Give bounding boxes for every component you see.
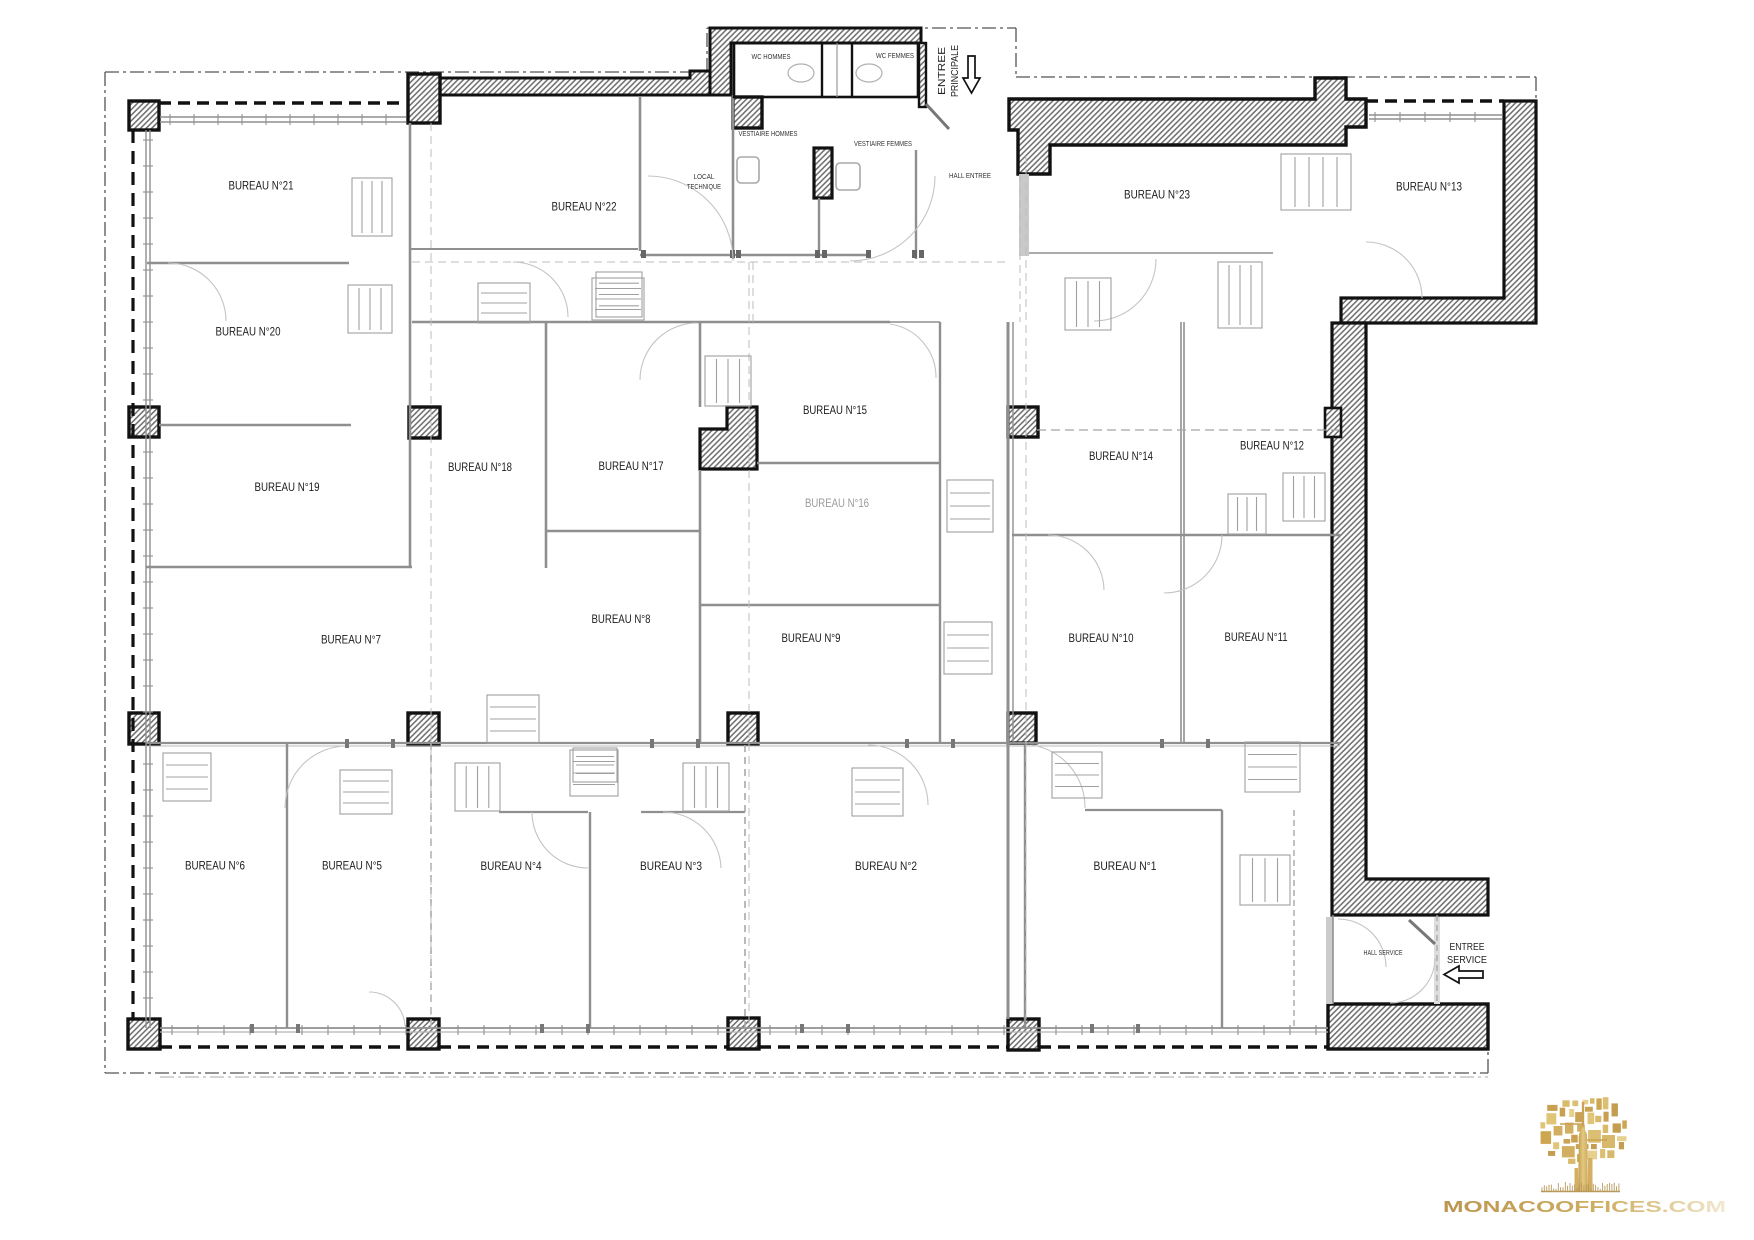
svg-text:WC HOMMES: WC HOMMES: [752, 52, 791, 61]
svg-text:PRINCIPALE: PRINCIPALE: [949, 45, 961, 97]
svg-text:BUREAU N°16: BUREAU N°16: [805, 498, 869, 510]
svg-text:BUREAU N°20: BUREAU N°20: [216, 327, 281, 339]
svg-text:BUREAU N°5: BUREAU N°5: [322, 861, 382, 873]
svg-text:BUREAU N°21: BUREAU N°21: [229, 181, 294, 193]
svg-text:BUREAU N°2: BUREAU N°2: [855, 861, 917, 873]
svg-text:BUREAU N°11: BUREAU N°11: [1225, 632, 1288, 644]
svg-text:BUREAU N°12: BUREAU N°12: [1240, 441, 1304, 453]
svg-text:BUREAU N°4: BUREAU N°4: [481, 861, 543, 873]
svg-text:HALL SERVICE: HALL SERVICE: [1364, 948, 1403, 957]
svg-text:BUREAU N°22: BUREAU N°22: [552, 202, 617, 214]
svg-text:BUREAU N°17: BUREAU N°17: [599, 461, 664, 473]
svg-text:BUREAU N°7: BUREAU N°7: [321, 635, 381, 647]
svg-text:BUREAU N°8: BUREAU N°8: [592, 614, 651, 626]
svg-text:ENTREE: ENTREE: [936, 47, 948, 95]
svg-text:BUREAU N°15: BUREAU N°15: [803, 405, 867, 417]
svg-text:TECHNIQUE: TECHNIQUE: [687, 182, 721, 191]
svg-text:LOCAL: LOCAL: [694, 172, 715, 181]
svg-text:BUREAU N°13: BUREAU N°13: [1396, 182, 1462, 194]
svg-text:BUREAU N°14: BUREAU N°14: [1089, 451, 1153, 463]
svg-text:BUREAU N°23: BUREAU N°23: [1124, 190, 1190, 202]
svg-text:ENTREE: ENTREE: [1450, 941, 1485, 953]
svg-text:HALL ENTREE: HALL ENTREE: [949, 171, 991, 180]
svg-text:BUREAU N°3: BUREAU N°3: [640, 861, 702, 873]
svg-text:BUREAU N°18: BUREAU N°18: [448, 462, 512, 474]
svg-text:BUREAU N°10: BUREAU N°10: [1069, 633, 1134, 645]
svg-text:BUREAU N°9: BUREAU N°9: [782, 633, 841, 645]
svg-text:BUREAU N°1: BUREAU N°1: [1094, 861, 1157, 873]
svg-text:MONACOOFFICES.COM: MONACOOFFICES.COM: [1443, 1199, 1726, 1216]
svg-text:SERVICE: SERVICE: [1447, 954, 1487, 966]
svg-text:VESTIAIRE FEMMES: VESTIAIRE FEMMES: [854, 139, 912, 148]
svg-text:WC FEMMES: WC FEMMES: [876, 51, 914, 60]
svg-text:BUREAU N°19: BUREAU N°19: [255, 482, 320, 494]
svg-text:VESTIAIRE HOMMES: VESTIAIRE HOMMES: [739, 129, 798, 138]
svg-text:BUREAU N°6: BUREAU N°6: [185, 861, 245, 873]
